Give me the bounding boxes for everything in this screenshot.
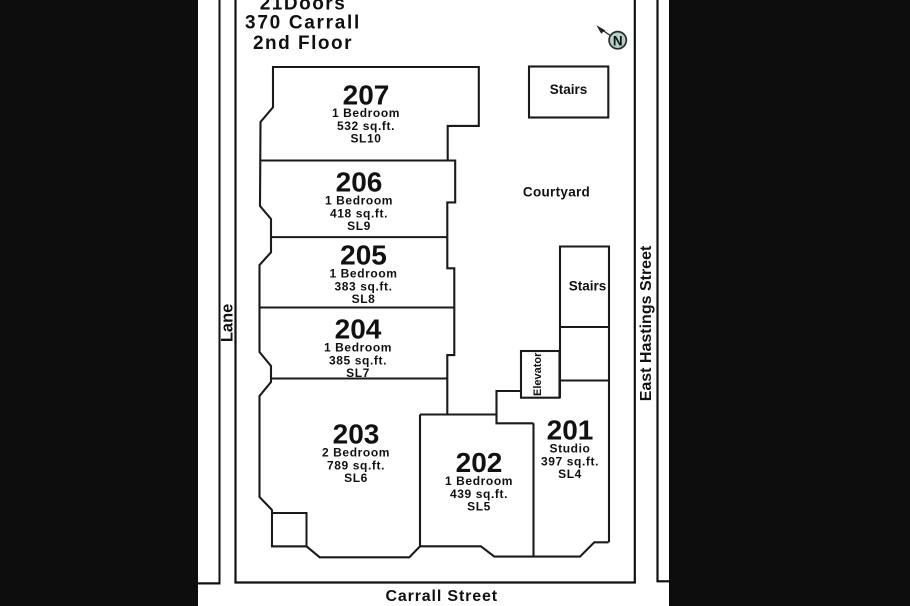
svg-text:SL8: SL8 bbox=[352, 292, 376, 306]
svg-text:N: N bbox=[613, 34, 623, 49]
svg-text:Lane: Lane bbox=[219, 304, 237, 343]
svg-text:Elevator: Elevator bbox=[532, 352, 544, 396]
svg-text:Carrall Street: Carrall Street bbox=[385, 588, 497, 605]
svg-text:532 sq.ft.: 532 sq.ft. bbox=[337, 119, 395, 133]
svg-text:SL7: SL7 bbox=[346, 366, 370, 380]
svg-text:Stairs: Stairs bbox=[550, 82, 588, 97]
svg-text:SL5: SL5 bbox=[467, 500, 491, 514]
svg-text:Stairs: Stairs bbox=[569, 279, 607, 294]
svg-text:East Hastings Street: East Hastings Street bbox=[638, 245, 655, 401]
svg-text:Courtyard: Courtyard bbox=[523, 184, 590, 199]
svg-text:370 Carrall: 370 Carrall bbox=[245, 13, 361, 34]
svg-text:SL6: SL6 bbox=[344, 471, 368, 485]
svg-text:SL10: SL10 bbox=[350, 132, 381, 146]
svg-text:SL4: SL4 bbox=[558, 467, 582, 481]
svg-text:SL9: SL9 bbox=[347, 219, 371, 233]
svg-text:2nd Floor: 2nd Floor bbox=[253, 33, 353, 54]
